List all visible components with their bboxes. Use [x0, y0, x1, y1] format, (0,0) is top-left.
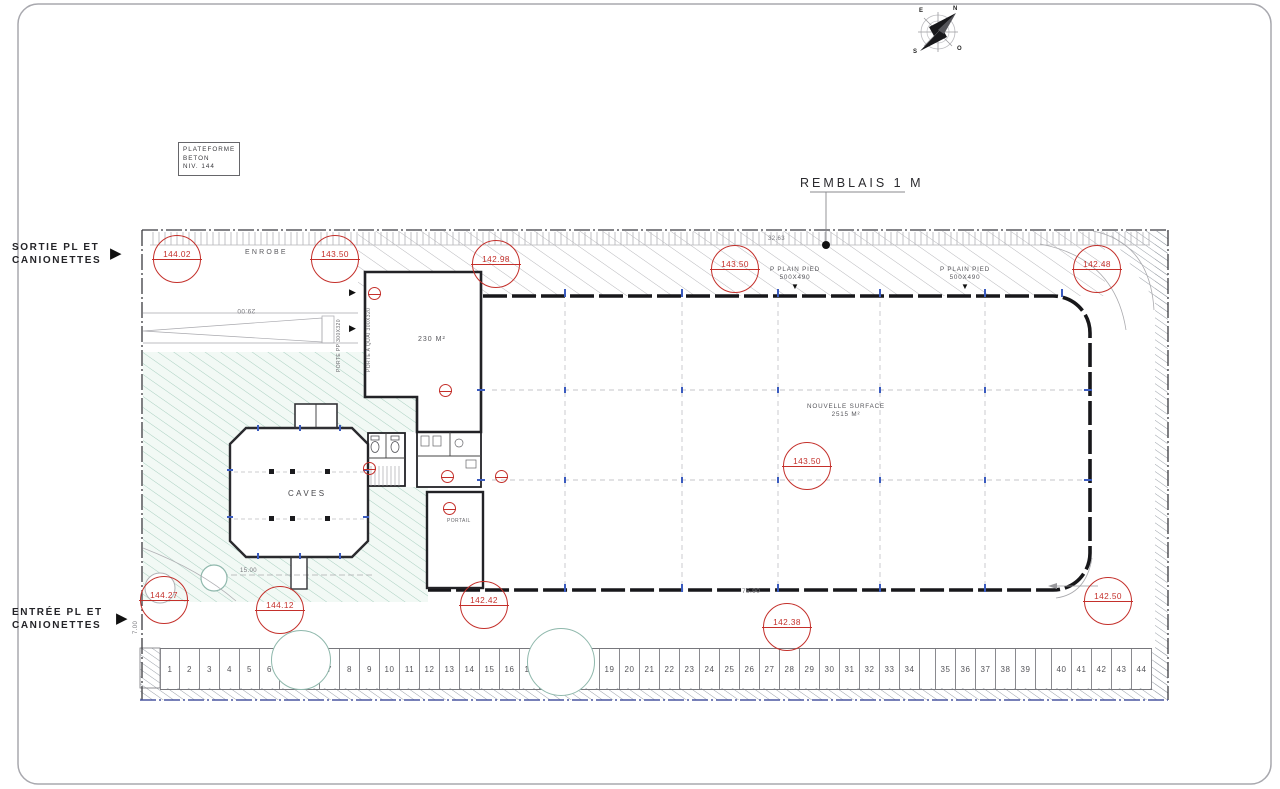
porte-quai-label: PORTE A QUAI 300X320	[366, 308, 372, 372]
compass-rose	[918, 12, 958, 52]
parking-stall: 34	[900, 649, 920, 689]
elevation-marker: 142.38	[763, 603, 811, 651]
parking-stall: 44	[1132, 649, 1152, 689]
parking-stall: 40	[1052, 649, 1072, 689]
door-opening-icon	[439, 384, 452, 397]
parking-stall: 24	[700, 649, 720, 689]
parking-stall: 38	[996, 649, 1016, 689]
parking-stall: 3	[200, 649, 220, 689]
entree-label: ENTRÉE PL ET CANIONETTES	[12, 607, 103, 632]
parking-stall: 19	[600, 649, 620, 689]
elevation-value: 142.98	[473, 254, 519, 264]
parking-stall: 35	[936, 649, 956, 689]
elevation-value: 142.42	[461, 595, 507, 605]
parking-stall: 20	[620, 649, 640, 689]
parking-stall: 10	[380, 649, 400, 689]
parking-stall: 22	[660, 649, 680, 689]
remblais-label: REMBLAIS 1 M	[800, 176, 924, 190]
plateforme-line3: NIV. 144	[183, 163, 235, 172]
elevation-marker: 143.50	[311, 235, 359, 283]
parking-tree-icon	[271, 630, 331, 690]
elevation-value: 142.48	[1074, 259, 1120, 269]
parking-empty-bay	[1036, 649, 1052, 689]
elevation-value: 144.12	[257, 600, 303, 610]
dim-top-setback: 32.63	[768, 236, 785, 242]
elevation-marker: 143.50	[783, 442, 831, 490]
sortie-label: SORTIE PL ET CANIONETTES	[12, 242, 101, 267]
door-opening-icon	[368, 287, 381, 300]
parking-stall: 43	[1112, 649, 1132, 689]
parking-stall: 30	[820, 649, 840, 689]
plain-pied-right-line1: P PLAIN PIED	[934, 266, 996, 274]
porte-pp-arrow-icon: ▶	[349, 288, 356, 297]
access-ramp	[143, 313, 358, 343]
dim-caves-length: 15.00	[240, 568, 257, 574]
elevation-marker: 142.42	[460, 581, 508, 629]
dim-ramp-length: 29.00	[237, 307, 255, 314]
parking-stall: 39	[1016, 649, 1036, 689]
hall-grid	[492, 302, 1084, 586]
parking-stall: 25	[720, 649, 740, 689]
plain-pied-right-door-icon: ▼	[961, 283, 969, 291]
elevation-marker: 144.12	[256, 586, 304, 634]
elevation-value: 142.38	[764, 617, 810, 627]
parking-stall: 12	[420, 649, 440, 689]
door-opening-icon	[441, 470, 454, 483]
elevation-value: 143.50	[784, 456, 830, 466]
dim-hall-width: 75.90	[742, 588, 760, 595]
parking-stall: 41	[1072, 649, 1092, 689]
parking-stall: 27	[760, 649, 780, 689]
porte-pp-label: PORTE PP 300X320	[336, 319, 342, 372]
parking-stall: 5	[240, 649, 260, 689]
sortie-arrow-icon: ▶	[110, 246, 122, 261]
parking-stall: 23	[680, 649, 700, 689]
portail-label: PORTAIL	[447, 518, 471, 524]
hall-walls	[428, 296, 1090, 590]
parking-stall: 2	[180, 649, 200, 689]
elevation-marker: 142.98	[472, 240, 520, 288]
parking-stall: 13	[440, 649, 460, 689]
parking-stall: 36	[956, 649, 976, 689]
parking-stall: 32	[860, 649, 880, 689]
parking-stall: 21	[640, 649, 660, 689]
sortie-line2: CANIONETTES	[12, 255, 101, 268]
site-plan-sheet: PLATEFORME BETON NIV. 144 REMBLAIS 1 M E…	[0, 0, 1280, 789]
plateforme-note-box: PLATEFORME BETON NIV. 144	[178, 142, 240, 176]
plain-pied-right-label: P PLAIN PIED 500X490	[934, 266, 996, 282]
elevation-marker: 143.50	[711, 245, 759, 293]
plain-pied-left-door-icon: ▼	[791, 283, 799, 291]
plain-pied-left-line1: P PLAIN PIED	[764, 266, 826, 274]
hall-line1: NOUVELLE SURFACE	[798, 403, 894, 411]
annex-area-label: 230 M²	[418, 336, 446, 343]
parking-stall: 26	[740, 649, 760, 689]
compass-s: S	[913, 49, 917, 55]
entree-line1: ENTRÉE PL ET	[12, 607, 103, 620]
sortie-line1: SORTIE PL ET	[12, 242, 101, 255]
elevation-marker: 142.50	[1084, 577, 1132, 625]
door-opening-icon	[443, 502, 456, 515]
parking-stall: 37	[976, 649, 996, 689]
parking-stall: 1	[160, 649, 180, 689]
compass-n: N	[953, 6, 957, 12]
door-opening-icon	[495, 470, 508, 483]
elevation-marker: 144.27	[140, 576, 188, 624]
parking-stall: 31	[840, 649, 860, 689]
plateforme-line2: BETON	[183, 155, 235, 164]
elevation-value: 144.02	[154, 249, 200, 259]
elevation-value: 144.27	[141, 590, 187, 600]
entree-arrow-icon: ▶	[116, 611, 128, 626]
parking-empty-bay	[920, 649, 936, 689]
parking-stall: 16	[500, 649, 520, 689]
compass-e: E	[919, 8, 923, 14]
plateforme-line1: PLATEFORME	[183, 146, 235, 155]
enrobe-label: ENROBE	[245, 249, 288, 256]
elevation-value: 143.50	[712, 259, 758, 269]
parking-tree-icon	[527, 628, 595, 696]
elevation-marker: 142.48	[1073, 245, 1121, 293]
plain-pied-left-label: P PLAIN PIED 500X490	[764, 266, 826, 282]
porte-quai-arrow-icon: ▶	[349, 324, 356, 333]
parking-stall: 28	[780, 649, 800, 689]
parking-stall: 8	[340, 649, 360, 689]
door-opening-icon	[363, 462, 376, 475]
caves-label: CAVES	[288, 489, 327, 498]
parking-stall: 15	[480, 649, 500, 689]
dim-entry-width: 7.00	[133, 621, 139, 634]
parking-stall: 9	[360, 649, 380, 689]
parking-stall: 33	[880, 649, 900, 689]
parking-stall: 29	[800, 649, 820, 689]
hall-line2: 2515 M²	[798, 411, 894, 419]
parking-stall: 14	[460, 649, 480, 689]
hall-area-label: NOUVELLE SURFACE 2515 M²	[798, 403, 894, 419]
elevation-value: 142.50	[1085, 591, 1131, 601]
parking-stall: 42	[1092, 649, 1112, 689]
entree-line2: CANIONETTES	[12, 620, 103, 633]
elevation-marker: 144.02	[153, 235, 201, 283]
parking-stall: 4	[220, 649, 240, 689]
compass-o: O	[957, 46, 962, 52]
parking-stall: 11	[400, 649, 420, 689]
elevation-value: 143.50	[312, 249, 358, 259]
